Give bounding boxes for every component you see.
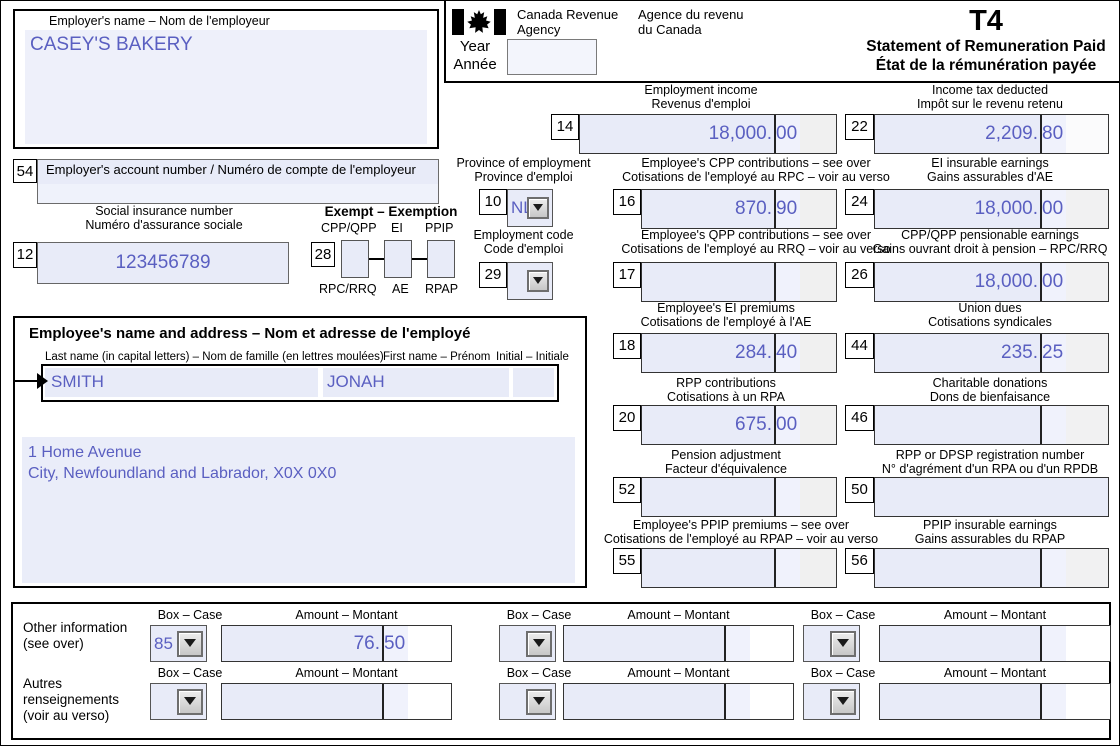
employer-name-box: Employer's name – Nom de l'employeur CAS… [13,9,439,149]
field-shading [564,684,724,719]
box-29-label: Employment codeCode d'emploi [456,229,591,256]
form-title-en: Statement of Remuneration Paid [856,37,1116,56]
down-triangle [533,697,545,705]
field-shading [642,549,774,587]
field-shading [724,626,750,661]
amount-label: Amount – Montant [879,667,1111,681]
employee-address-value: 1 Home Avenue City, Newfoundland and Lab… [28,442,336,484]
field-shading [800,549,836,587]
last-name-value: SMITH [51,372,104,392]
year-label: YearAnnée [445,38,505,74]
employee-address-input[interactable]: 1 Home Avenue City, Newfoundland and Lab… [22,437,575,583]
box-24-label: EI insurable earningsGains assurables d'… [859,157,1120,184]
box-46-field[interactable] [874,405,1109,445]
dropdown-arrow-icon[interactable] [526,689,552,715]
field-shading [1040,406,1066,444]
dropdown-arrow-icon[interactable] [527,270,549,292]
employee-section-box: Employee's name and address – Nom et adr… [13,316,587,588]
box-55-number: 55 [613,548,641,574]
amount-label: Amount – Montant [563,609,794,623]
box-14-number: 14 [551,114,579,140]
employee-section-title: Employee's name and address – Nom et adr… [29,325,470,342]
first-name-value: JONAH [327,372,385,392]
exempt-ei-checkbox[interactable] [384,240,412,278]
box-44-number: 44 [845,333,874,359]
other-amount-field-r1c2[interactable] [563,625,794,662]
box-18-label: Employee's EI premiumsCotisations de l'e… [566,302,886,329]
last-name-input[interactable]: SMITH [45,368,318,397]
employer-name-value: CASEY'S BAKERY [30,34,193,56]
field-shading [1040,626,1066,661]
field-shading [875,549,1040,587]
cents-divider [1040,549,1042,587]
field-shading [875,406,1040,444]
box-26-label: CPP/QPP pensionable earningsGains ouvran… [859,229,1120,256]
other-information-section: Other information(see over) Autresrensei… [11,602,1111,740]
field-shading [750,684,793,719]
cents-divider [724,626,726,661]
field-shading [408,684,451,719]
cents-divider [774,549,776,587]
cents-divider [724,684,726,719]
box-22-label: Income tax deductedImpôt sur le revenu r… [859,84,1120,111]
canada-flag-icon [452,9,506,35]
cents-divider [1040,626,1042,661]
field-shading [1066,549,1108,587]
other-box-select-r2c3[interactable] [803,683,860,720]
down-triangle [533,204,543,211]
field-shading [800,190,836,228]
box-24-number: 24 [845,189,874,215]
initial-label: Initial – Initiale [496,351,569,363]
box-12-number: 12 [13,242,37,268]
other-amount-field-r2c1[interactable] [221,683,452,720]
sin-input[interactable]: 123456789 [37,242,289,284]
cents-divider [1040,684,1042,719]
field-shading [382,684,408,719]
field-shading [1066,263,1108,301]
field-shading [1066,115,1108,153]
exempt-ppip-checkbox[interactable] [427,240,455,278]
other-box-select-r1c3[interactable] [803,625,860,662]
field-shading [800,406,836,444]
field-shading [774,478,800,516]
t4-form: Employer's name – Nom de l'employeur CAS… [0,0,1120,746]
exempt-label-cppqpp: CPP/QPP [321,222,377,236]
exempt-title: Exempt – Exemption [316,204,466,219]
field-shading [642,263,774,301]
box-52-field[interactable] [641,477,837,517]
exempt-cppqpp-checkbox[interactable] [341,240,369,278]
agency-name-fr: Agence du revenudu Canada [638,7,744,37]
other-amount-field-r1c1[interactable]: 76.50 [221,625,452,662]
box-14-field[interactable]: 18,000.00 [579,114,837,154]
box-44-label: Union duesCotisations syndicales [859,302,1120,329]
other-box-select-r2c2[interactable] [499,683,556,720]
amount-label: Amount – Montant [231,609,462,623]
maple-leaf-icon [466,9,492,35]
box-29-number: 29 [479,262,507,288]
employee-name-arrow-head [37,373,48,389]
field-shading [800,478,836,516]
other-amount-field-r2c2[interactable] [563,683,794,720]
cents-divider [774,263,776,301]
box-14-label: Employment incomeRevenus d'emploi [596,84,806,111]
other-amount-field-r2c3[interactable] [879,683,1111,720]
field-shading [880,626,1040,661]
down-triangle [533,639,545,647]
dropdown-arrow-icon[interactable] [526,631,552,657]
flag-right-bar [494,9,506,35]
field-shading [564,626,724,661]
box-22-field[interactable]: 2,209.80 [874,114,1109,154]
other-information-label-fr: Autresrenseignements(voir au verso) [23,676,119,724]
field-shading [724,684,750,719]
box-10-label: Province of employmentProvince d'emploi [456,157,591,184]
field-shading [1040,684,1066,719]
down-triangle [837,639,849,647]
field-shading [1066,190,1108,228]
employer-name-input[interactable]: CASEY'S BAKERY [25,30,427,144]
cents-divider [1040,406,1042,444]
dropdown-arrow-icon[interactable] [177,689,203,715]
box-17-number: 17 [613,262,641,288]
last-name-label: Last name (in capital letters) – Nom de … [45,351,384,363]
agency-name-en: Canada RevenueAgency [517,7,618,37]
employee-name-row: SMITH JONAH [41,364,559,402]
field-shading [1066,626,1110,661]
field-shading [800,115,836,153]
other-box-select-r1c1[interactable]: 85 [150,625,207,662]
amount-label: Amount – Montant [563,667,794,681]
exempt-label-ppip: PPIP [425,222,454,236]
dropdown-arrow-icon[interactable] [830,689,856,715]
dropdown-arrow-icon[interactable] [177,631,203,657]
first-name-input[interactable]: JONAH [323,368,509,397]
box-10-field[interactable]: NL [507,189,553,227]
form-title-fr: État de la rémunération payée [856,56,1116,75]
field-shading [880,684,1040,719]
box-56-number: 56 [845,548,874,574]
exempt-label-ae: AE [392,283,409,297]
box-16-number: 16 [613,189,641,215]
dropdown-arrow-icon[interactable] [527,197,549,219]
box-18-field[interactable]: 284.40 [641,333,837,373]
box-50-field[interactable] [874,477,1109,517]
amount-label: Amount – Montant [231,667,462,681]
box-18-number: 18 [613,333,641,359]
box-50-number: 50 [845,477,874,503]
box-20-label: RPP contributionsCotisations à un RPA [566,377,886,404]
cents-divider [774,478,776,516]
box-54-number: 54 [13,159,37,183]
box-16-field[interactable]: 870.90 [641,189,837,229]
other-box-value: 85 [154,626,173,661]
sin-value: 123456789 [38,243,288,283]
other-box-select-r2c1[interactable] [150,683,207,720]
form-title-block: T4 Statement of Remuneration Paid État d… [856,5,1116,75]
field-shading [800,263,836,301]
field-shading [222,684,382,719]
field-shading [1066,406,1108,444]
checkbox-connector [412,258,427,260]
form-code: T4 [856,5,1116,37]
box-case-label: Box – Case [803,667,883,681]
field-shading [875,478,1108,516]
field-shading [408,626,451,661]
down-triangle [184,697,196,705]
first-name-label: First name – Prénom [383,351,490,363]
box-20-field[interactable]: 675.00 [641,405,837,445]
box-52-number: 52 [613,477,641,503]
field-shading [1066,684,1110,719]
checkbox-connector [369,258,384,260]
amount-label: Amount – Montant [879,609,1111,623]
box-50-label: RPP or DPSP registration numberN° d'agré… [859,449,1120,476]
exempt-label-rpap: RPAP [425,283,458,297]
box-28-number: 28 [311,242,335,267]
other-amount-field-r1c3[interactable] [879,625,1111,662]
dropdown-arrow-icon[interactable] [830,631,856,657]
box-55-field[interactable] [641,548,837,588]
box-56-field[interactable] [874,548,1109,588]
down-triangle [533,277,543,284]
employer-account-label: Employer's account number / Numéro de co… [46,163,416,177]
box-24-field[interactable]: 18,000.00 [874,189,1109,229]
field-shading [1066,334,1108,372]
other-box-select-r1c2[interactable] [499,625,556,662]
field-shading [800,334,836,372]
field-shading [750,626,793,661]
box-55-label: Employee's PPIP premiums – see overCotis… [596,519,886,546]
box-10-number: 10 [479,189,507,215]
employer-account-input[interactable]: Employer's account number / Numéro de co… [37,159,439,204]
box-26-field[interactable]: 18,000.00 [874,262,1109,302]
box-46-label: Charitable donationsDons de bienfaisance [859,377,1120,404]
box-56-label: PPIP insurable earningsGains assurables … [859,519,1120,546]
down-triangle [837,697,849,705]
exempt-label-ei: EI [391,222,403,236]
box-case-label: Box – Case [150,609,230,623]
box-22-number: 22 [845,114,874,140]
employee-name-arrow-line [15,380,39,382]
box-case-label: Box – Case [150,667,230,681]
field-shading [774,263,800,301]
box-29-field[interactable] [507,262,553,300]
sin-label: Social insurance numberNuméro d'assuranc… [39,205,289,232]
other-information-label-en: Other information(see over) [23,620,127,652]
initial-input[interactable] [513,368,554,397]
field-shading [774,549,800,587]
box-17-field[interactable] [641,262,837,302]
field-shading [1040,549,1066,587]
field-shading [38,184,438,203]
exempt-label-rpcrrq: RPC/RRQ [319,283,377,297]
employer-name-label: Employer's name – Nom de l'employeur [49,15,270,29]
year-input[interactable] [507,39,597,75]
cents-divider [382,684,384,719]
box-52-label: Pension adjustmentFacteur d'équivalence [566,449,886,476]
box-44-field[interactable]: 235.25 [874,333,1109,373]
down-triangle [184,639,196,647]
box-20-number: 20 [613,405,641,431]
box-26-number: 26 [845,262,874,288]
box-case-label: Box – Case [803,609,883,623]
flag-left-bar [452,9,464,35]
field-shading [642,478,774,516]
box-46-number: 46 [845,405,874,431]
